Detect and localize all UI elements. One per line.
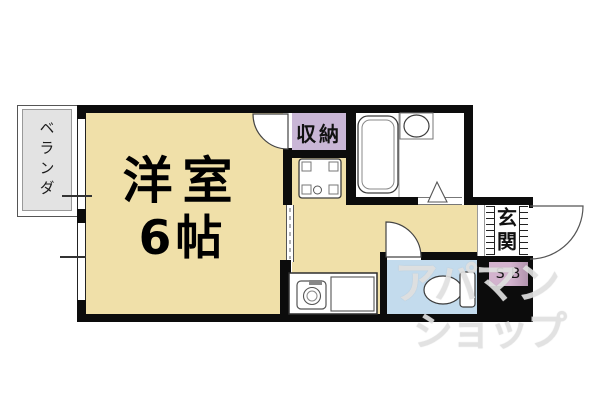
window-lower — [77, 223, 86, 300]
closet-label: 収納 — [292, 113, 346, 152]
main-room-name: 洋室 — [90, 153, 275, 210]
bathroom-doorway — [418, 197, 462, 205]
wall-top — [78, 105, 473, 113]
wall-partition-lower — [280, 260, 291, 314]
main-room-label: 洋室 6帖 — [90, 153, 275, 267]
floorplan-canvas: ベランダ 玄関 SB — [0, 0, 600, 400]
wall-left-a — [77, 105, 86, 119]
closet-doorway — [283, 112, 292, 149]
kitchen-floor-upper — [292, 155, 346, 314]
wall-bath-bottom — [346, 197, 418, 205]
watermark-line2: ショップ — [413, 299, 565, 357]
wall-left-mullion — [77, 209, 86, 223]
sliding-door — [286, 205, 294, 262]
window-center-mark-lower — [60, 256, 86, 258]
wall-closet-bath — [346, 113, 356, 205]
veranda: ベランダ — [17, 105, 78, 217]
wall-toilet-left — [380, 252, 387, 322]
window-center-mark-upper — [62, 195, 92, 197]
wall-entrance-top — [464, 197, 533, 205]
veranda-label: ベランダ — [37, 120, 58, 200]
main-room-size: 6帖 — [90, 210, 275, 267]
bathroom-floor — [356, 113, 464, 197]
wall-bath-right — [464, 105, 473, 205]
